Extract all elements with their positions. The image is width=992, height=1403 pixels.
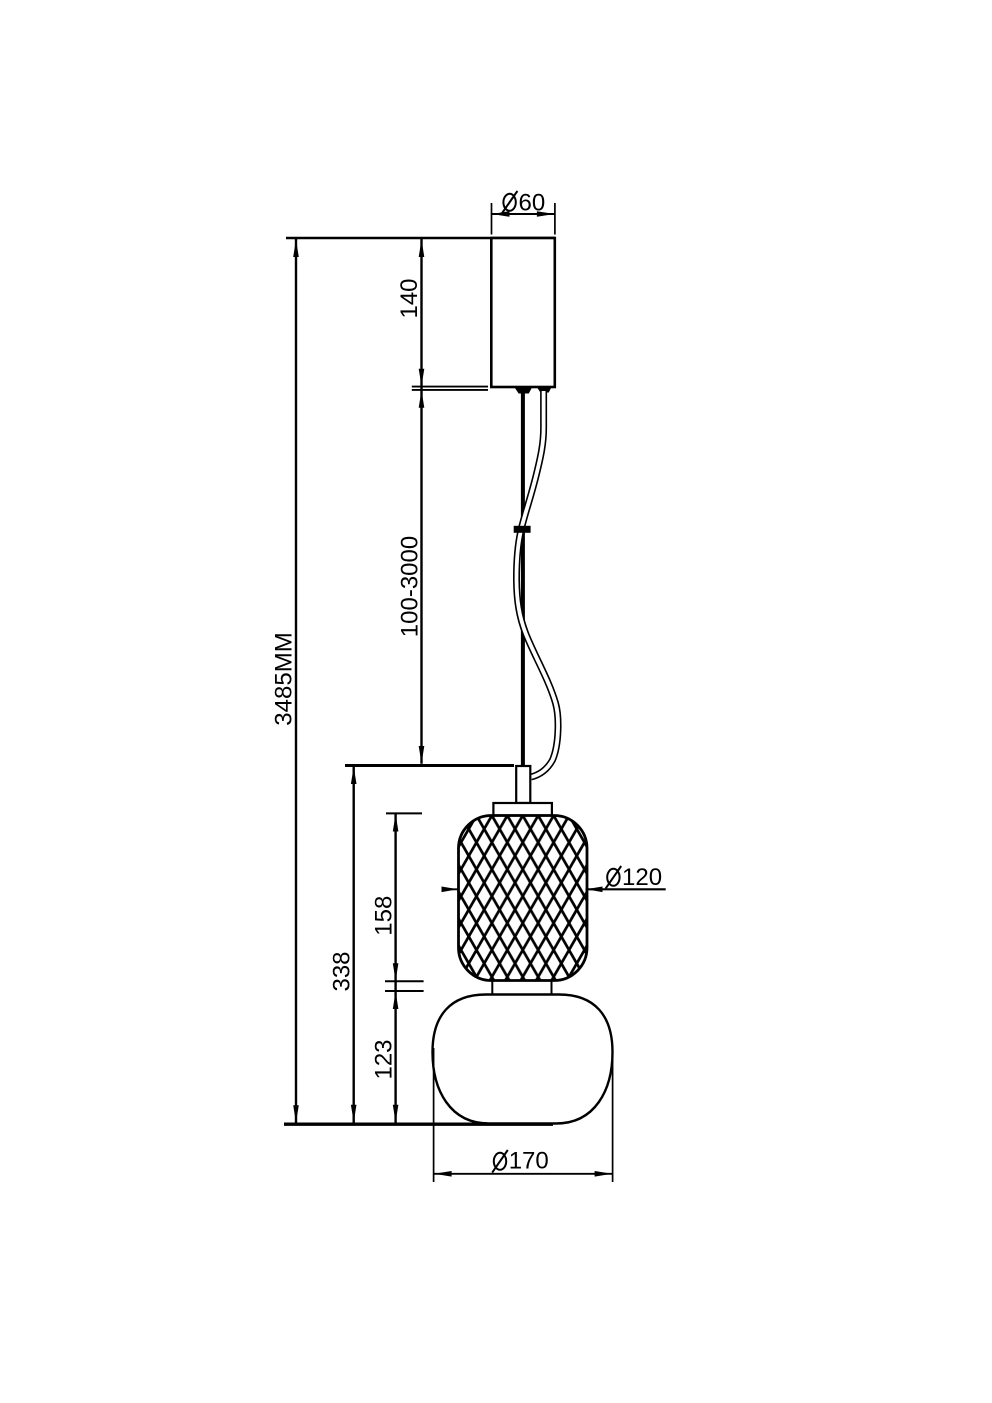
svg-text:100-3000: 100-3000 <box>397 536 424 637</box>
svg-text:60: 60 <box>519 189 546 216</box>
svg-text:338: 338 <box>329 951 356 991</box>
svg-text:140: 140 <box>396 278 423 318</box>
svg-text:170: 170 <box>509 1148 549 1175</box>
svg-text:120: 120 <box>622 864 662 891</box>
svg-text:158: 158 <box>371 896 398 936</box>
svg-text:123: 123 <box>371 1039 398 1079</box>
svg-text:3485MM: 3485MM <box>271 632 298 725</box>
